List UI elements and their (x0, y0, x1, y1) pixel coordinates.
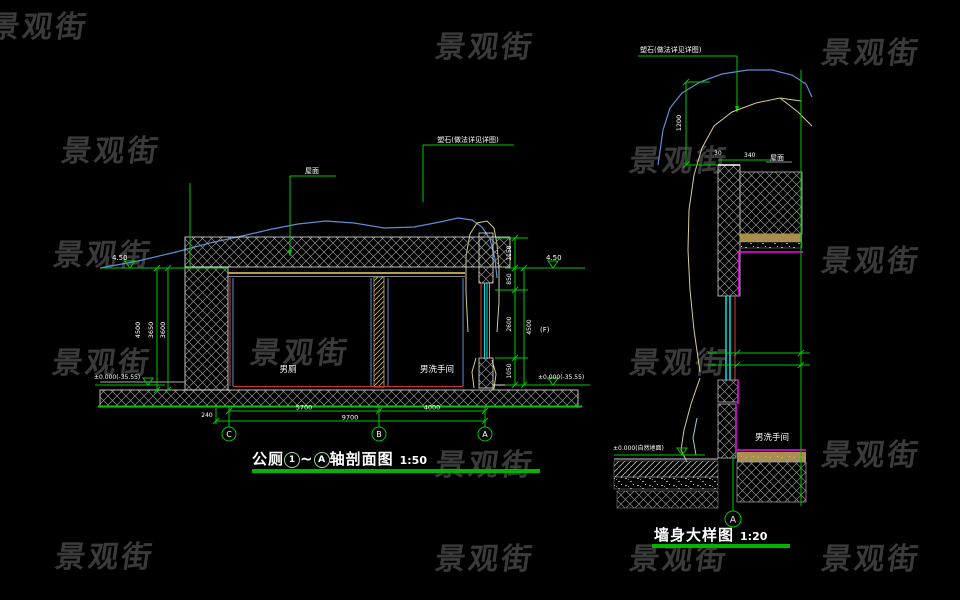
subgrade-band (617, 491, 718, 508)
section-title-suffix: 轴剖面图 (330, 450, 394, 468)
dim-text: 9700 (342, 414, 359, 422)
axis-circle-end: A (314, 452, 330, 468)
rock-leader (423, 145, 514, 202)
wall-detail-title-name: 墙身大样图 (654, 526, 734, 544)
gravel-band (614, 477, 718, 489)
section-title-prefix: 公厕 (252, 450, 284, 468)
level-marks (95, 261, 590, 385)
axis-bubble-label: B (376, 430, 382, 439)
screed-band (740, 242, 802, 248)
floor-slab (100, 390, 578, 406)
floor-slab-detail (737, 462, 806, 502)
room-label: 男洗手间 (420, 364, 454, 375)
elevation-text: 4.50 (546, 254, 562, 262)
dim-text: 2600 (506, 316, 513, 331)
dim-text: 850 (506, 273, 513, 285)
dim-text: 4500 (526, 319, 533, 334)
mid-dims (708, 350, 810, 368)
cad-canvas: 景观街 景观街 景观街 景观街 景观街 景观街 景观街 景观街 景观街 景观街 … (0, 0, 960, 600)
door-head-pier (479, 233, 493, 283)
dim-text: 30 (714, 150, 722, 157)
section-title-underline (252, 469, 540, 473)
lower-pier (718, 404, 736, 458)
dim-text: 240 (201, 412, 213, 419)
rock-outline (472, 358, 476, 388)
left-wall (185, 267, 228, 390)
rock-outline (780, 98, 812, 126)
elevation-text: ±0.000(-35.55) (538, 374, 584, 381)
wall-detail-title: 墙身大样图1:20 (654, 524, 767, 545)
section-drawing: 男厕 男洗手间 屋面 塑石(做法详见详图) 4.50 ±0.000(-35.55… (94, 135, 590, 441)
dim-text: 340 (744, 152, 756, 159)
rock-inner-line (693, 418, 697, 455)
floor-screed-speckle (737, 452, 806, 462)
rock-leader-text: 塑石(做法详见详图) (640, 45, 702, 54)
elevation-text: ±0.000(-35.55) (94, 374, 140, 381)
axis-bubble-label: C (226, 430, 232, 439)
rock-leader-text: 塑石(做法详见详图) (437, 135, 499, 144)
dim-text: 4000 (424, 404, 441, 412)
dim-text: 1200 (675, 115, 683, 132)
dim-text: 5700 (296, 404, 313, 412)
section-title-scale: 1:50 (400, 454, 427, 467)
section-title: 公厕1~A轴剖面图1:50 (252, 448, 427, 469)
roof-slab (185, 237, 510, 267)
parapet-wall (718, 165, 740, 296)
axis-bubble-label: A (482, 430, 488, 439)
dim-text: 4500 (134, 322, 142, 339)
roof-leader-text: 屋面 (305, 167, 319, 175)
middle-wall (374, 277, 384, 387)
wall-detail-title-underline (652, 544, 790, 548)
dim-text: 3600 (159, 322, 167, 339)
dim-text: 1050 (506, 363, 513, 378)
rock-leader (638, 56, 737, 112)
wall-detail-title-scale: 1:20 (740, 530, 767, 543)
rock-outline (681, 378, 700, 462)
elevation-text: 4.50 (112, 254, 128, 262)
roof-slab-detail (740, 172, 802, 234)
roof-label: 屋面 (770, 154, 784, 162)
section-title-tilde: ~ (300, 450, 314, 468)
room-label: 男厕 (279, 365, 297, 375)
dim-text: 1150 (506, 245, 513, 260)
elevation-text: ±0.000(自然地面) (613, 444, 664, 452)
wall-detail-drawing: 塑石(做法详见详图) 1200 (613, 45, 812, 527)
axis-circle-start: 1 (284, 452, 300, 468)
axis-bubbles (222, 427, 492, 441)
window-sill (718, 380, 738, 402)
dim-text: 3650 (147, 322, 155, 339)
room-label: 男洗手间 (755, 432, 789, 443)
pavement-band (614, 461, 718, 477)
drawing-svg: 男厕 男洗手间 屋面 塑石(做法详见详图) 4.50 ±0.000(-35.55… (0, 0, 960, 600)
dim-note: (F) (540, 326, 550, 334)
insulation-band (740, 234, 802, 242)
door-sill-pier (479, 358, 493, 388)
